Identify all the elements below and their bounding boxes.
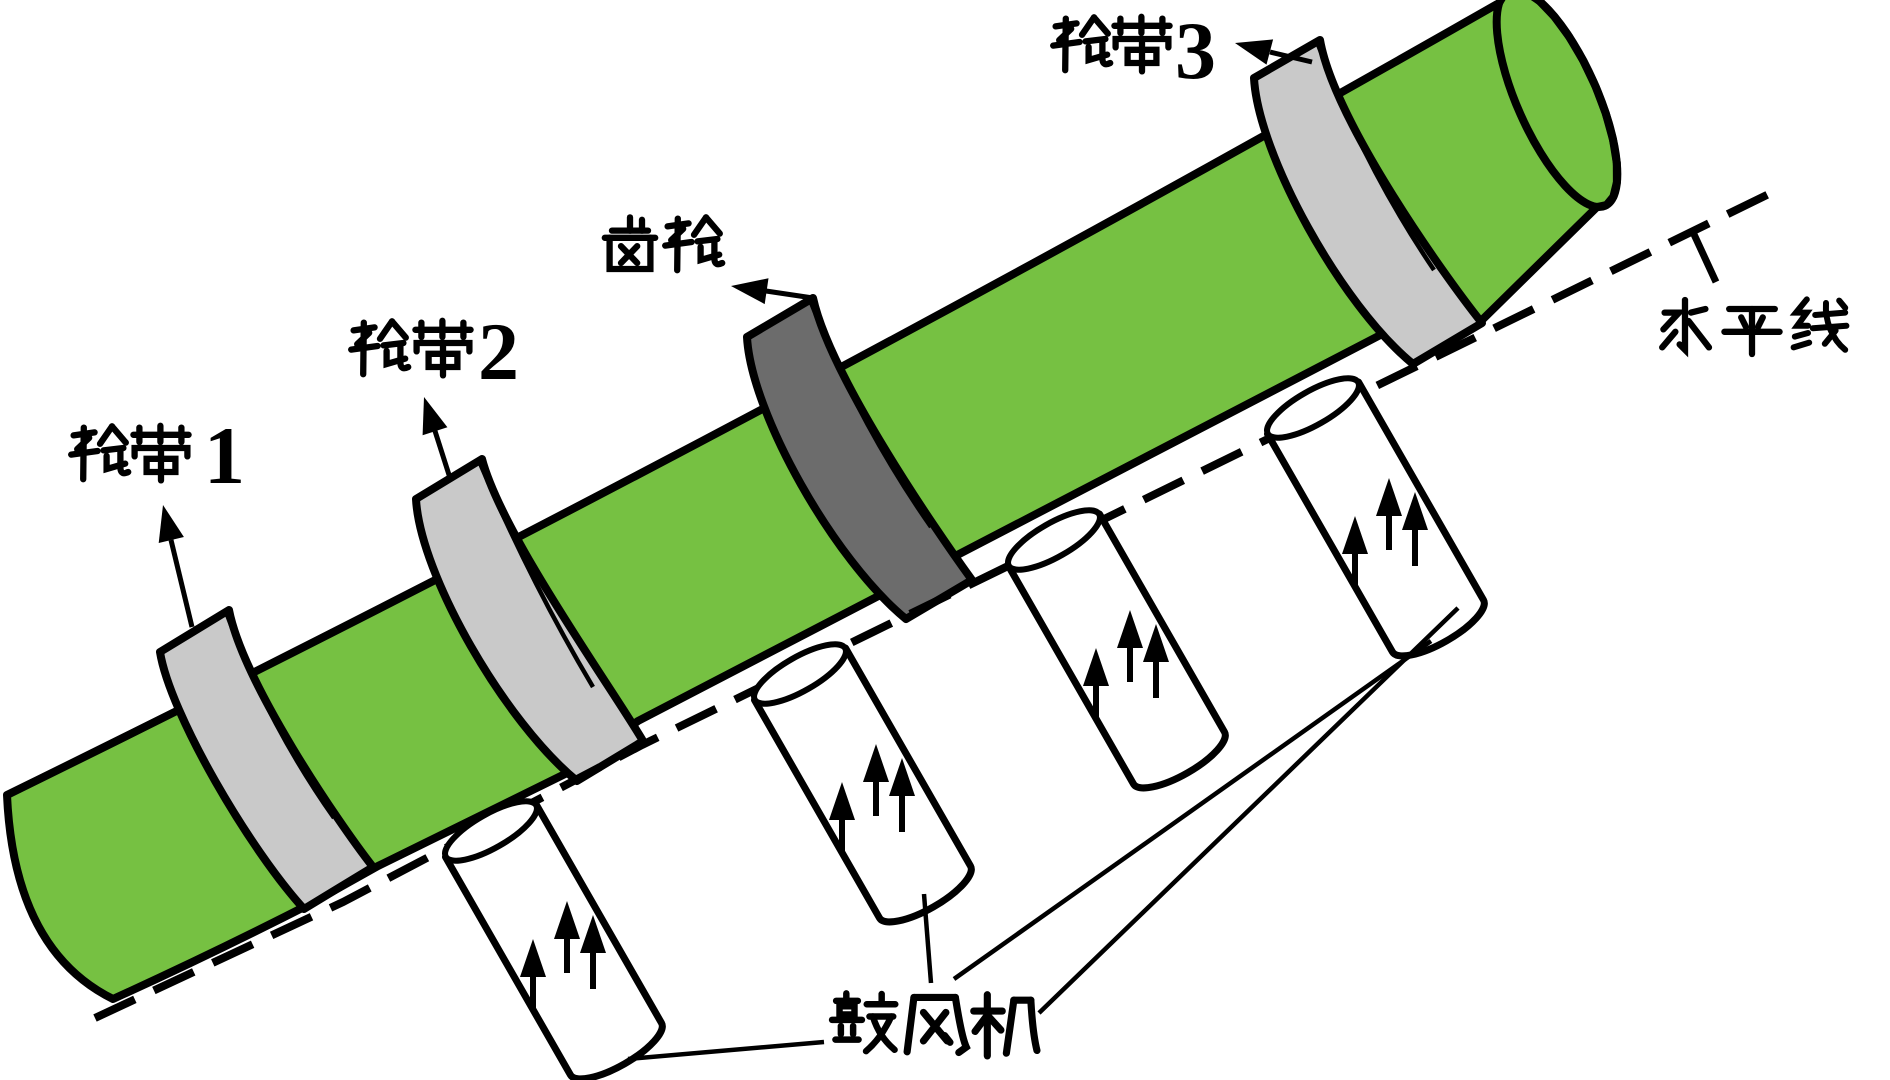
svg-text:3: 3 xyxy=(1175,5,1216,96)
svg-text:1: 1 xyxy=(204,410,245,501)
svg-text:2: 2 xyxy=(478,306,519,397)
